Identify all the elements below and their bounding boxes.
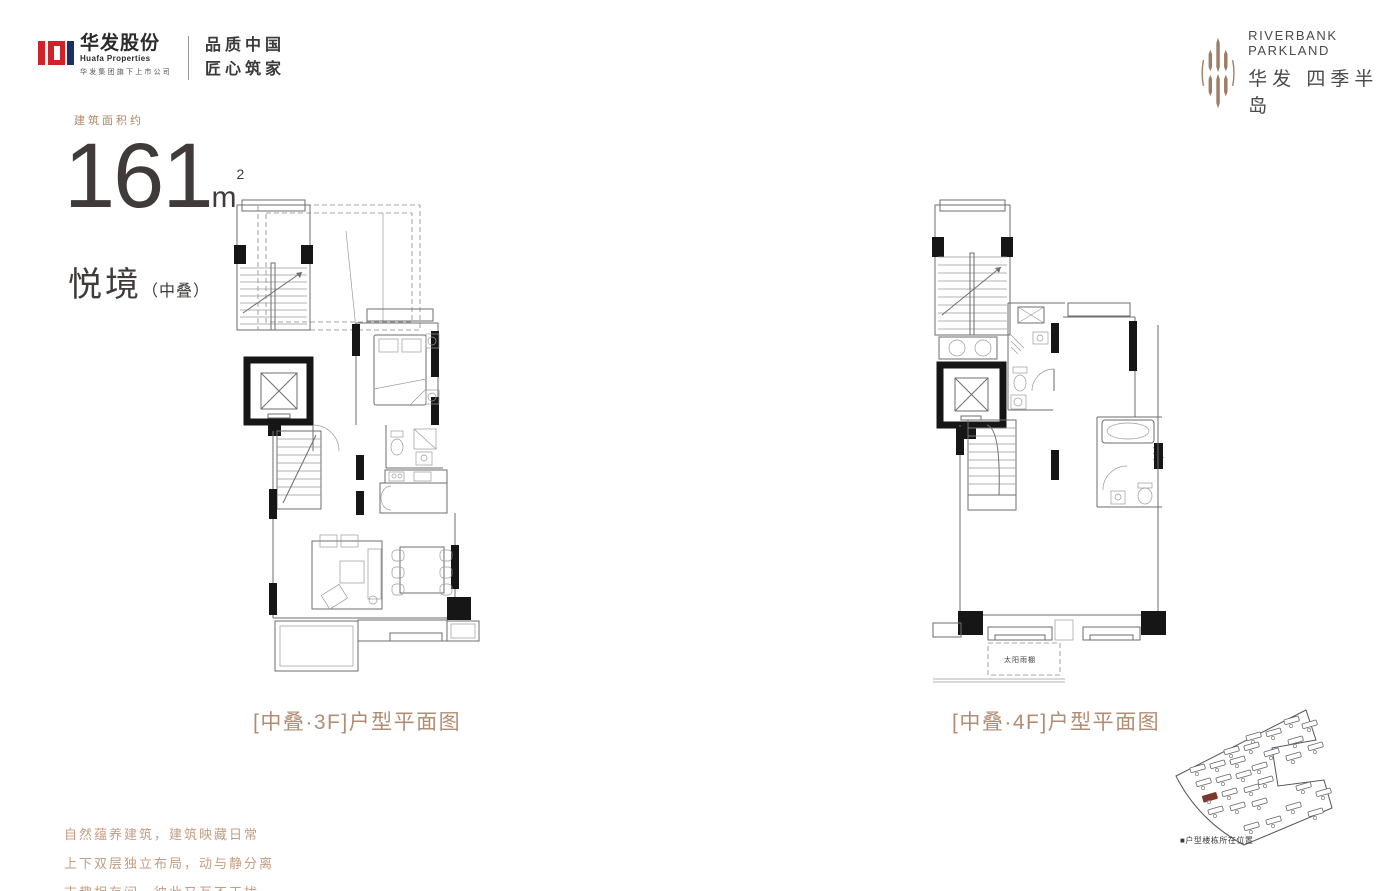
logo-divider	[188, 36, 189, 80]
slogan-line-2: 匠心筑家	[205, 58, 285, 82]
vanity	[939, 337, 997, 359]
huafa-logo: 华发股份 Huafa Properties 华发集团旗下上市公司 品质中国 匠心…	[38, 34, 285, 82]
site-building	[1308, 742, 1324, 751]
site-building	[1230, 802, 1246, 811]
site-building	[1246, 732, 1262, 741]
site-building-marker	[1221, 782, 1224, 785]
roof-overhang-dashed	[258, 205, 420, 330]
site-building-marker	[1291, 810, 1294, 813]
site-building	[1208, 806, 1224, 815]
site-building-marker	[1263, 784, 1266, 787]
site-building	[1196, 778, 1212, 787]
slogan-line-1: 品质中国	[205, 34, 285, 58]
site-building-marker	[1249, 792, 1252, 795]
site-building	[1216, 774, 1232, 783]
elevator	[247, 360, 310, 436]
site-building	[1252, 798, 1268, 807]
site-building	[1244, 784, 1260, 793]
washer	[1018, 307, 1044, 323]
poster-canvas: 华发股份 Huafa Properties 华发集团旗下上市公司 品质中国 匠心…	[0, 0, 1400, 891]
floorplan-3f	[228, 193, 493, 683]
internal-stair	[277, 431, 321, 509]
site-building-marker	[1215, 768, 1218, 771]
huafa-name-en: Huafa Properties	[80, 54, 172, 63]
bathroom	[386, 425, 443, 468]
site-building	[1266, 816, 1282, 825]
floorplan-4f: 太阳雨棚	[925, 195, 1175, 685]
unit-type-name: 悦境（中叠）	[68, 257, 244, 306]
site-building	[1236, 770, 1252, 779]
site-building-marker	[1307, 728, 1310, 731]
siteplan: ■户型楼栋所在位置	[1168, 692, 1398, 860]
site-building-marker	[1195, 772, 1198, 775]
sun-canopy: 太阳雨棚	[988, 643, 1060, 675]
canopy-label: 太阳雨棚	[1004, 655, 1036, 664]
project-name-en: RIVERBANK PARKLAND	[1248, 28, 1400, 58]
site-building-marker	[1269, 756, 1272, 759]
reed-icon	[1200, 30, 1236, 116]
site-building-marker	[1227, 796, 1230, 799]
site-building-marker	[1249, 750, 1252, 753]
huafa-logo-icon	[38, 36, 74, 70]
sofa	[312, 535, 382, 609]
site-building-marker	[1289, 724, 1292, 727]
site-building-marker	[1293, 744, 1296, 747]
site-building-marker	[1301, 790, 1304, 793]
site-building-marker	[1249, 830, 1252, 833]
site-building	[1286, 802, 1302, 811]
stairwell	[932, 200, 1013, 335]
site-building	[1222, 788, 1238, 797]
huafa-subtitle: 华发集团旗下上市公司	[80, 67, 172, 77]
middle-bathroom	[1008, 303, 1065, 410]
site-building-marker	[1291, 760, 1294, 763]
site-building	[1308, 808, 1324, 817]
site-building	[1244, 822, 1260, 831]
unit-title-block: 建筑面积约 161m2 悦境（中叠）	[64, 112, 244, 306]
site-building-marker	[1271, 736, 1274, 739]
site-building-marker	[1213, 814, 1216, 817]
stairwell	[234, 200, 313, 330]
caption-plan-3f: [中叠·3F]户型平面图	[253, 706, 461, 736]
site-building-marker	[1201, 786, 1204, 789]
site-building	[1210, 760, 1226, 769]
site-building-marker	[1229, 754, 1232, 757]
site-building	[1252, 762, 1268, 771]
site-buildings	[1190, 716, 1332, 834]
area-value: 161m2	[64, 128, 244, 249]
project-name-cn: 华发 四季半岛	[1248, 64, 1400, 118]
kitchen	[356, 455, 447, 515]
project-logo: RIVERBANK PARKLAND 华发 四季半岛	[1200, 28, 1400, 118]
site-building-marker	[1241, 778, 1244, 781]
site-building-marker	[1235, 810, 1238, 813]
site-building-marker	[1257, 806, 1260, 809]
site-building-marker	[1313, 750, 1316, 753]
site-building	[1264, 748, 1280, 757]
upper-room	[1063, 303, 1137, 417]
huafa-name-cn: 华发股份	[80, 34, 172, 54]
site-building	[1258, 776, 1274, 785]
caption-plan-4f: [中叠·4F]户型平面图	[952, 706, 1160, 736]
site-building	[1316, 788, 1332, 797]
footer-line-3: 志趣相存间，彼此又互不干扰	[64, 878, 274, 891]
bedroom	[352, 309, 439, 425]
site-building-marker	[1313, 816, 1316, 819]
site-building-marker	[1235, 764, 1238, 767]
site-building-marker	[1271, 824, 1274, 827]
bed	[374, 335, 426, 405]
footer-line-2: 上下双层独立布局，动与静分离	[64, 849, 274, 878]
site-building-marker	[1257, 770, 1260, 773]
footer-copy: 自然蕴养建筑，建筑映藏日常 上下双层独立布局，动与静分离 志趣相存间，彼此又互不…	[64, 820, 274, 891]
balcony	[275, 620, 479, 671]
dining-table	[392, 547, 452, 595]
footer-line-1: 自然蕴养建筑，建筑映藏日常	[64, 820, 274, 849]
tub-bathroom	[1097, 417, 1164, 507]
site-building	[1286, 752, 1302, 761]
siteplan-legend: ■户型楼栋所在位置	[1180, 835, 1253, 846]
site-building-marker	[1321, 796, 1324, 799]
living-room	[269, 431, 471, 620]
